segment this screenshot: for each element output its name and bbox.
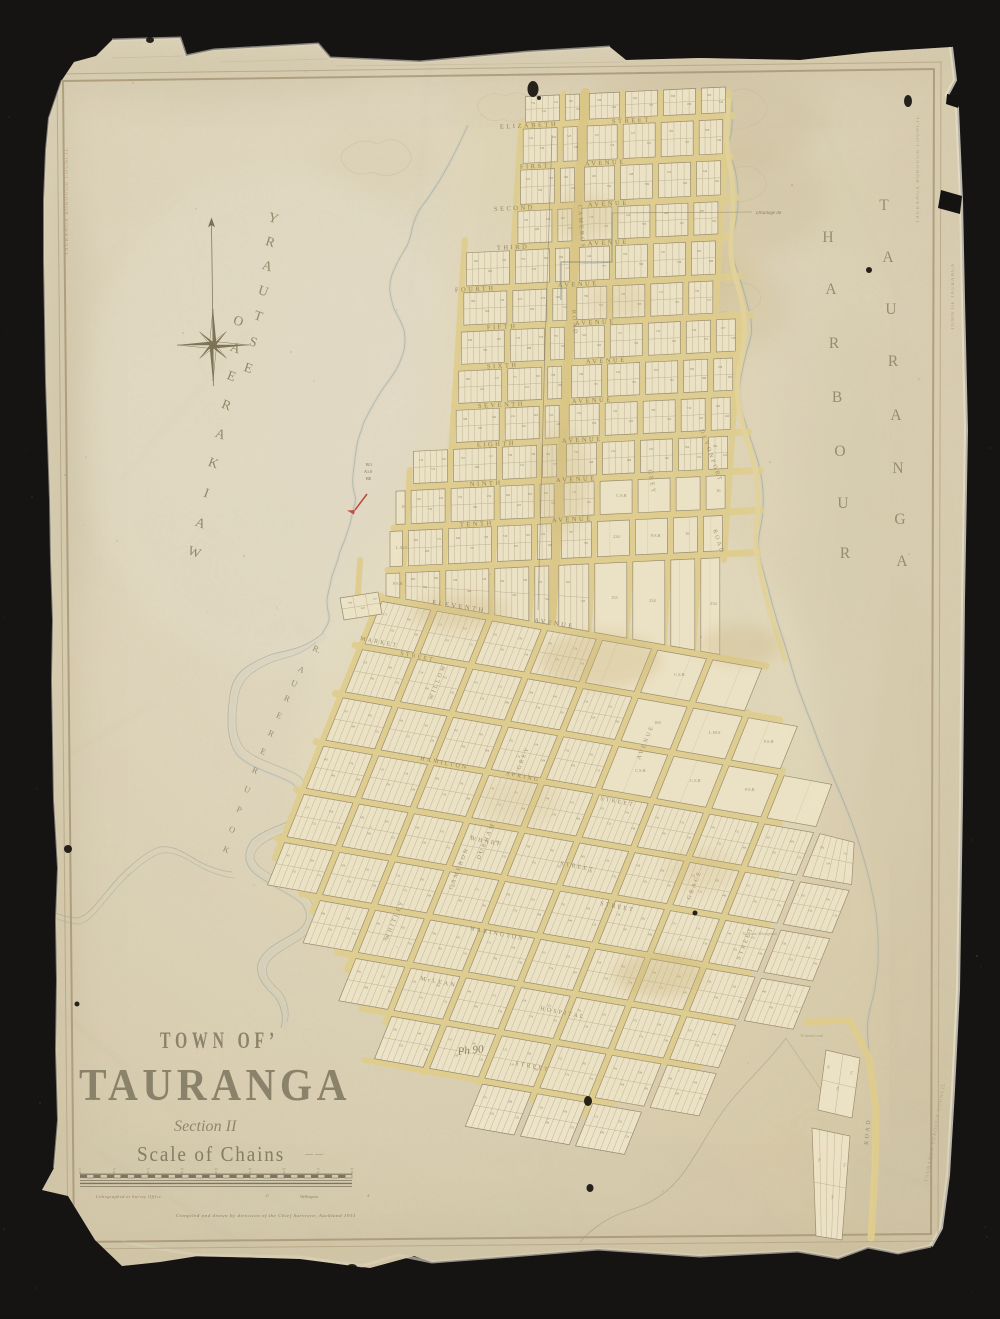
svg-text:G: G (894, 511, 905, 528)
svg-text:40: 40 (215, 1167, 219, 1171)
svg-text:FIFTH: FIFTH (487, 323, 518, 331)
svg-text:To Mount Maunganui: To Mount Maunganui (742, 931, 777, 936)
svg-text:N: N (892, 460, 903, 477)
svg-text:50: 50 (249, 1167, 253, 1171)
svg-text:Wellington: Wellington (300, 1194, 318, 1199)
svg-text:20: 20 (147, 1167, 151, 1171)
svg-text:A: A (825, 281, 837, 298)
svg-text:U: U (837, 495, 848, 512)
svg-text:TOWN OF TAURANGA: TOWN OF TAURANGA (951, 263, 956, 330)
svg-text:B: B (832, 389, 842, 406)
svg-text:A1.0: A1.0 (364, 469, 372, 474)
svg-text:A: A (890, 407, 902, 424)
svg-text:BE: BE (366, 476, 372, 481)
svg-text:R: R (888, 353, 899, 370)
svg-text:30: 30 (181, 1167, 185, 1171)
svg-text:Drainage dn: Drainage dn (755, 211, 782, 216)
svg-text:R: R (840, 545, 851, 562)
svg-text:TAURANGA BOROUGH COUNCIL: TAURANGA BOROUGH COUNCIL (65, 147, 70, 255)
svg-text:Lithographed at Survey Office: Lithographed at Survey Office (95, 1194, 161, 1199)
svg-text:80: 80 (351, 1167, 355, 1171)
svg-text:B/1: B/1 (366, 462, 372, 467)
svg-text:Section II: Section II (174, 1118, 238, 1135)
svg-text:— —: — — (304, 1149, 324, 1158)
svg-text:FIRST: FIRST (520, 162, 550, 170)
svg-text:10: 10 (113, 1167, 117, 1171)
svg-text:SIXTH: SIXTH (487, 362, 519, 370)
svg-text:70: 70 (317, 1167, 321, 1171)
svg-text:O: O (834, 443, 845, 460)
svg-text:TAURANGA BOROUGH COUNCIL: TAURANGA BOROUGH COUNCIL (916, 115, 921, 223)
svg-text:A: A (882, 249, 894, 266)
svg-text:U: U (885, 301, 896, 318)
svg-text:H: H (822, 229, 833, 246)
svg-text:Scale of Chains: Scale of Chains (137, 1142, 285, 1166)
svg-text:R: R (829, 335, 840, 352)
svg-text:To beach road: To beach road (800, 1033, 824, 1038)
svg-text:TAURANGA: TAURANGA (79, 1059, 351, 1110)
svg-text:TOWN OF’: TOWN OF’ (160, 1028, 279, 1053)
svg-text:60: 60 (283, 1167, 287, 1171)
svg-text:T: T (879, 197, 889, 214)
svg-text:A: A (896, 553, 908, 570)
